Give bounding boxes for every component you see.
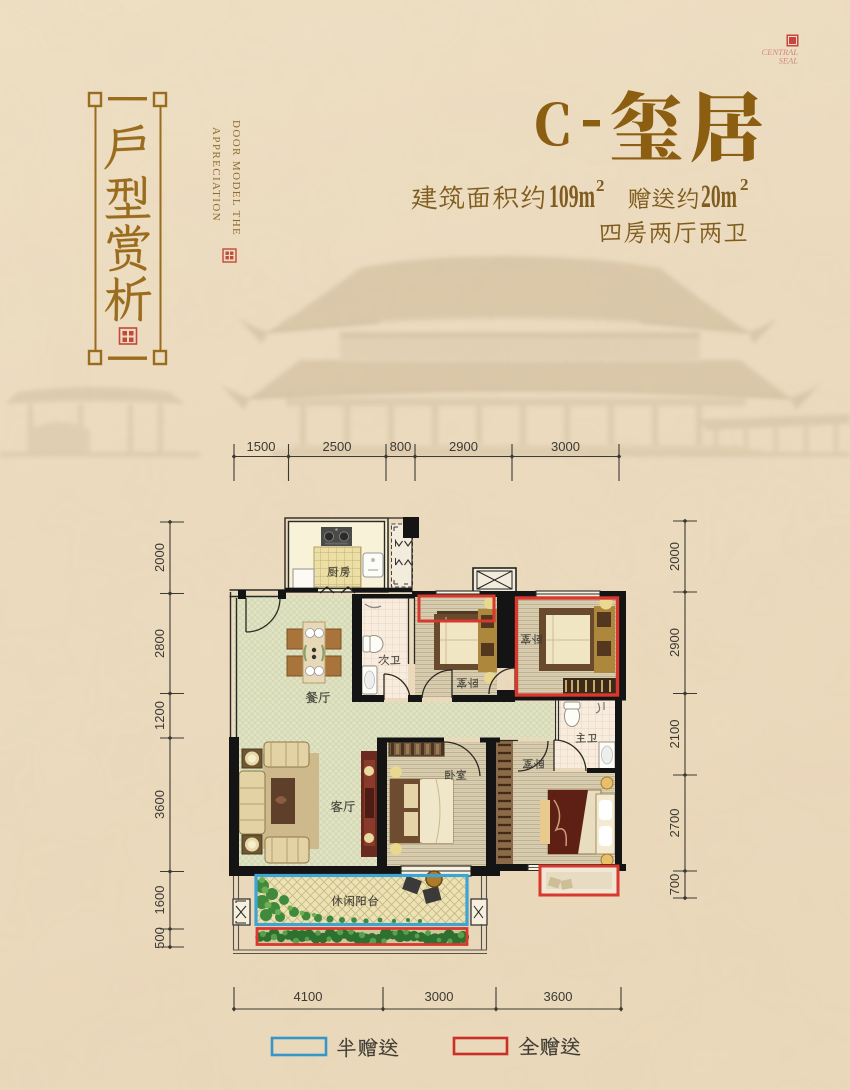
svg-text:DOOR MODEL THE: DOOR MODEL THE xyxy=(230,120,242,236)
svg-text:2100: 2100 xyxy=(667,720,682,749)
svg-text:3000: 3000 xyxy=(425,989,454,1004)
svg-text:2800: 2800 xyxy=(152,629,167,658)
svg-text:500: 500 xyxy=(152,927,167,949)
svg-text:2000: 2000 xyxy=(667,542,682,571)
svg-text:800: 800 xyxy=(390,439,412,454)
svg-text:2: 2 xyxy=(596,176,605,195)
svg-text:2500: 2500 xyxy=(323,439,352,454)
svg-text:2: 2 xyxy=(740,175,749,194)
svg-text:3600: 3600 xyxy=(152,790,167,819)
svg-text:1500: 1500 xyxy=(247,439,276,454)
svg-text:2000: 2000 xyxy=(152,543,167,572)
svg-text:700: 700 xyxy=(667,874,682,896)
svg-text:2900: 2900 xyxy=(449,439,478,454)
svg-text:1200: 1200 xyxy=(152,701,167,730)
svg-text:3600: 3600 xyxy=(544,989,573,1004)
svg-text:2700: 2700 xyxy=(667,809,682,838)
svg-text:1600: 1600 xyxy=(152,886,167,915)
svg-text:APPRECIATION: APPRECIATION xyxy=(210,127,222,222)
svg-text:2900: 2900 xyxy=(667,628,682,657)
svg-text:4100: 4100 xyxy=(294,989,323,1004)
svg-text:SEAL: SEAL xyxy=(779,56,799,66)
svg-text:109m: 109m xyxy=(549,179,595,215)
svg-text:20m: 20m xyxy=(701,179,737,215)
svg-text:3000: 3000 xyxy=(551,439,580,454)
